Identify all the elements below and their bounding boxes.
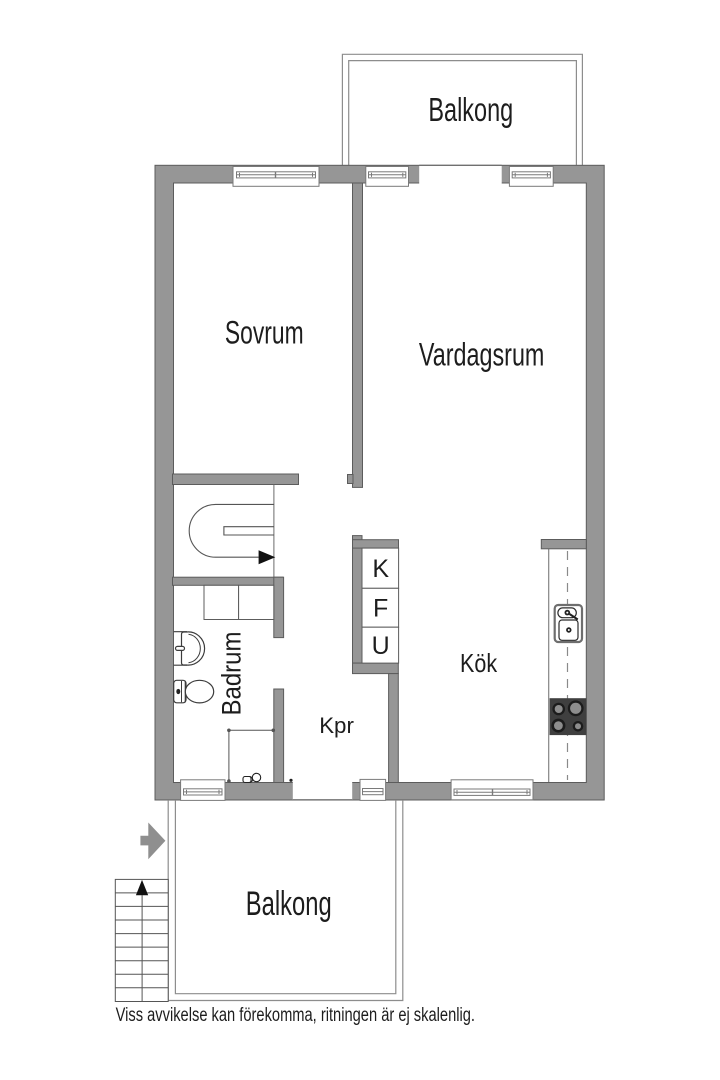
svg-text:Sovrum: Sovrum: [225, 315, 304, 351]
svg-text:Balkong: Balkong: [428, 91, 513, 128]
svg-text:K: K: [372, 555, 389, 583]
svg-text:U: U: [372, 632, 390, 660]
svg-text:Vardagsrum: Vardagsrum: [419, 337, 545, 373]
svg-text:Badrum: Badrum: [216, 632, 246, 716]
svg-text:Kök: Kök: [460, 648, 498, 678]
svg-text:F: F: [373, 595, 388, 623]
svg-text:Balkong: Balkong: [246, 885, 332, 923]
svg-text:Viss avvikelse kan förekomma,: Viss avvikelse kan förekomma, ritningen …: [116, 1005, 475, 1026]
svg-text:Kpr: Kpr: [319, 713, 354, 738]
